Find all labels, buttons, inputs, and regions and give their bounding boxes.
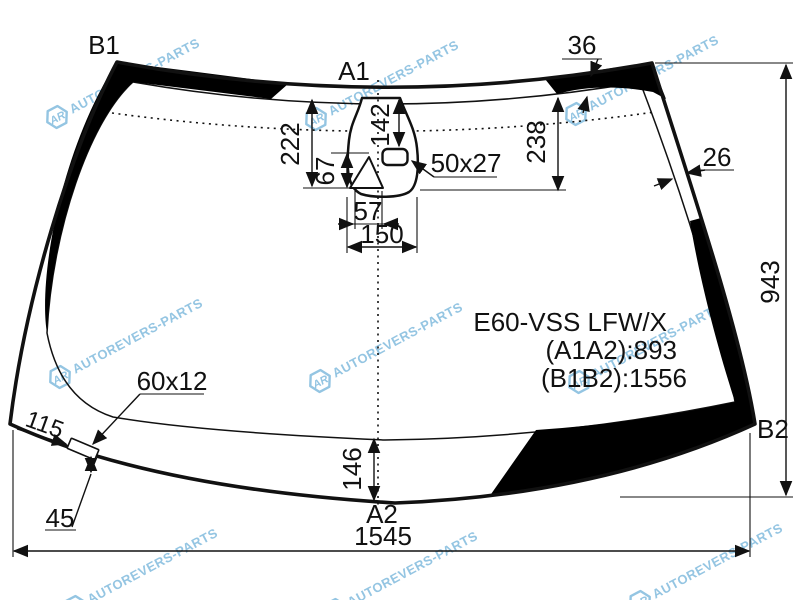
dim-label-115: 115 (22, 406, 67, 444)
leader-60x12 (93, 394, 140, 444)
dim-label-1545: 1545 (354, 521, 412, 551)
dim-label-50x27: 50x27 (431, 148, 502, 178)
dim-label-45: 45 (46, 503, 75, 533)
corner-label-a1: A1 (338, 56, 370, 86)
dim-label-222: 222 (275, 122, 305, 165)
dim-label-26: 26 (703, 142, 732, 172)
dim-label-238: 238 (521, 120, 551, 163)
part-b1b2-text: (B1B2):1556 (541, 363, 687, 393)
part-info-block: E60-VSS LFW/X (A1A2):893 (B1B2):1556 (473, 307, 687, 393)
part-model-text: E60-VSS LFW/X (473, 307, 667, 337)
dim-label-943: 943 (755, 260, 785, 303)
sensor-window-rect (383, 149, 408, 165)
dim-label-146: 146 (337, 447, 367, 490)
corner-label-b2: B2 (757, 414, 789, 444)
leader-26-opposite (654, 179, 672, 186)
leader-45 (72, 474, 91, 527)
dim-label-142: 142 (365, 103, 395, 146)
bottom-moulding-mark-rect (67, 438, 99, 460)
part-a1a2-text: (A1A2):893 (545, 335, 677, 365)
windshield-diagram-canvas: AR AUTOREVERS-PARTS (0, 0, 800, 600)
windshield-diagram: AR AUTOREVERS-PARTS (0, 0, 800, 600)
dim-label-60x12: 60x12 (137, 366, 208, 396)
dim-label-150: 150 (360, 219, 403, 249)
dim-label-67: 67 (310, 157, 340, 186)
corner-label-b1: B1 (88, 30, 120, 60)
watermark-layer (43, 30, 786, 600)
dim-label-36: 36 (568, 30, 597, 60)
